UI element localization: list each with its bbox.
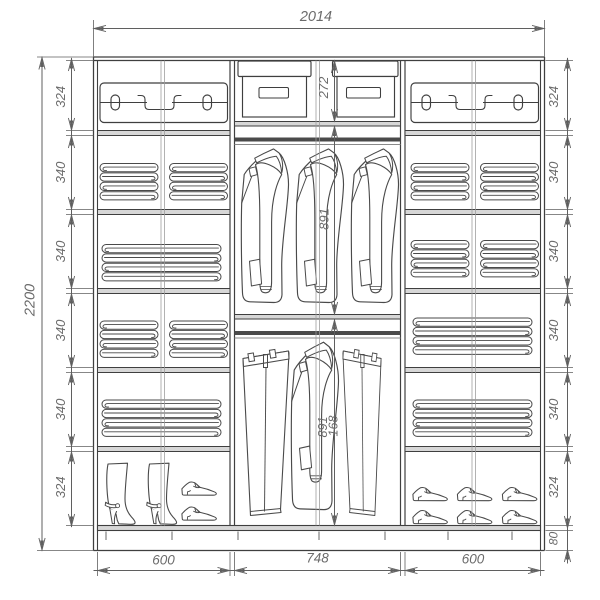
- svg-text:324: 324: [53, 476, 68, 498]
- svg-text:324: 324: [53, 86, 68, 108]
- svg-text:340: 340: [53, 161, 68, 183]
- svg-text:600: 600: [462, 552, 485, 567]
- svg-text:340: 340: [546, 161, 561, 183]
- svg-text:324: 324: [546, 86, 561, 108]
- svg-text:80: 80: [547, 532, 561, 546]
- svg-text:272: 272: [316, 76, 331, 99]
- svg-text:340: 340: [546, 319, 561, 341]
- svg-text:324: 324: [546, 476, 561, 498]
- svg-text:891: 891: [316, 208, 331, 230]
- svg-text:340: 340: [546, 240, 561, 262]
- svg-text:748: 748: [306, 551, 329, 566]
- svg-text:2200: 2200: [22, 284, 38, 317]
- svg-text:340: 340: [53, 319, 68, 341]
- svg-text:2014: 2014: [299, 9, 332, 25]
- svg-text:340: 340: [546, 398, 561, 420]
- svg-text:168: 168: [326, 416, 340, 437]
- svg-text:340: 340: [53, 240, 68, 262]
- svg-text:600: 600: [152, 553, 175, 568]
- svg-text:340: 340: [53, 398, 68, 420]
